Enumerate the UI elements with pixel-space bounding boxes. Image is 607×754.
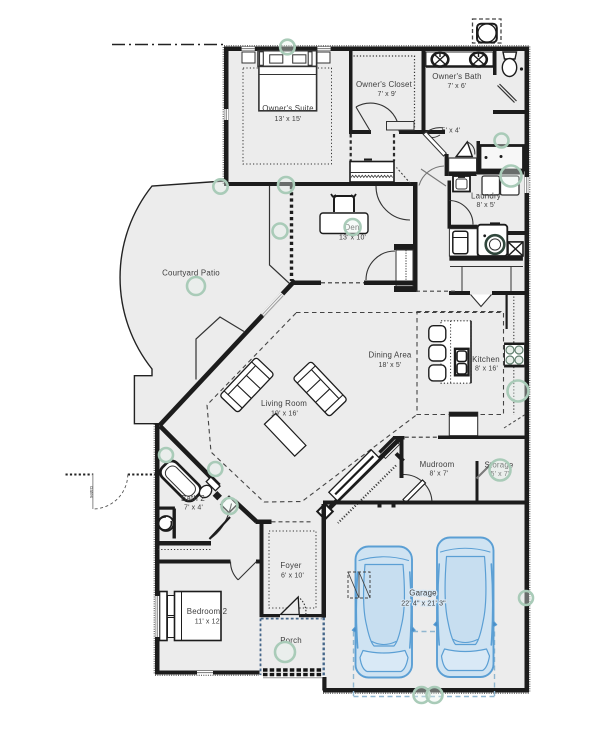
svg-text:19' x 16': 19' x 16': [271, 411, 298, 418]
svg-text:Bedroom 2: Bedroom 2: [187, 607, 227, 616]
svg-text:Living Room: Living Room: [261, 399, 307, 408]
svg-text:Owner's Suite: Owner's Suite: [262, 104, 314, 113]
svg-text:13' x 15': 13' x 15': [275, 116, 302, 123]
svg-text:Laundry: Laundry: [471, 192, 501, 201]
svg-text:7' x 4': 7' x 4': [184, 505, 203, 512]
svg-text:Courtyard Patio: Courtyard Patio: [162, 269, 220, 278]
svg-text:Garage: Garage: [409, 589, 437, 598]
svg-text:Dining Area: Dining Area: [369, 351, 412, 360]
svg-text:7' x 6': 7' x 6': [448, 83, 467, 90]
svg-text:Gates: Gates: [89, 486, 94, 499]
svg-text:Foyer: Foyer: [280, 561, 301, 570]
svg-text:Owner's Bath: Owner's Bath: [432, 72, 482, 81]
svg-text:8' x 16': 8' x 16': [475, 366, 498, 373]
svg-text:22' 4" x 21' 3": 22' 4" x 21' 3": [401, 601, 446, 608]
svg-text:6' x 10': 6' x 10': [281, 573, 304, 580]
svg-text:Bath 2: Bath 2: [181, 494, 205, 503]
svg-text:8' x 5': 8' x 5': [477, 202, 496, 209]
svg-text:Owner's Closet: Owner's Closet: [356, 80, 413, 89]
svg-text:Kitchen: Kitchen: [472, 355, 500, 364]
svg-text:7' x 9': 7' x 9': [378, 91, 397, 98]
svg-text:8' x 7': 8' x 7': [430, 471, 449, 478]
svg-text:Mudroom: Mudroom: [420, 460, 455, 469]
svg-text:18' x 5': 18' x 5': [379, 362, 402, 369]
svg-text:11' x 12': 11' x 12': [195, 619, 221, 626]
